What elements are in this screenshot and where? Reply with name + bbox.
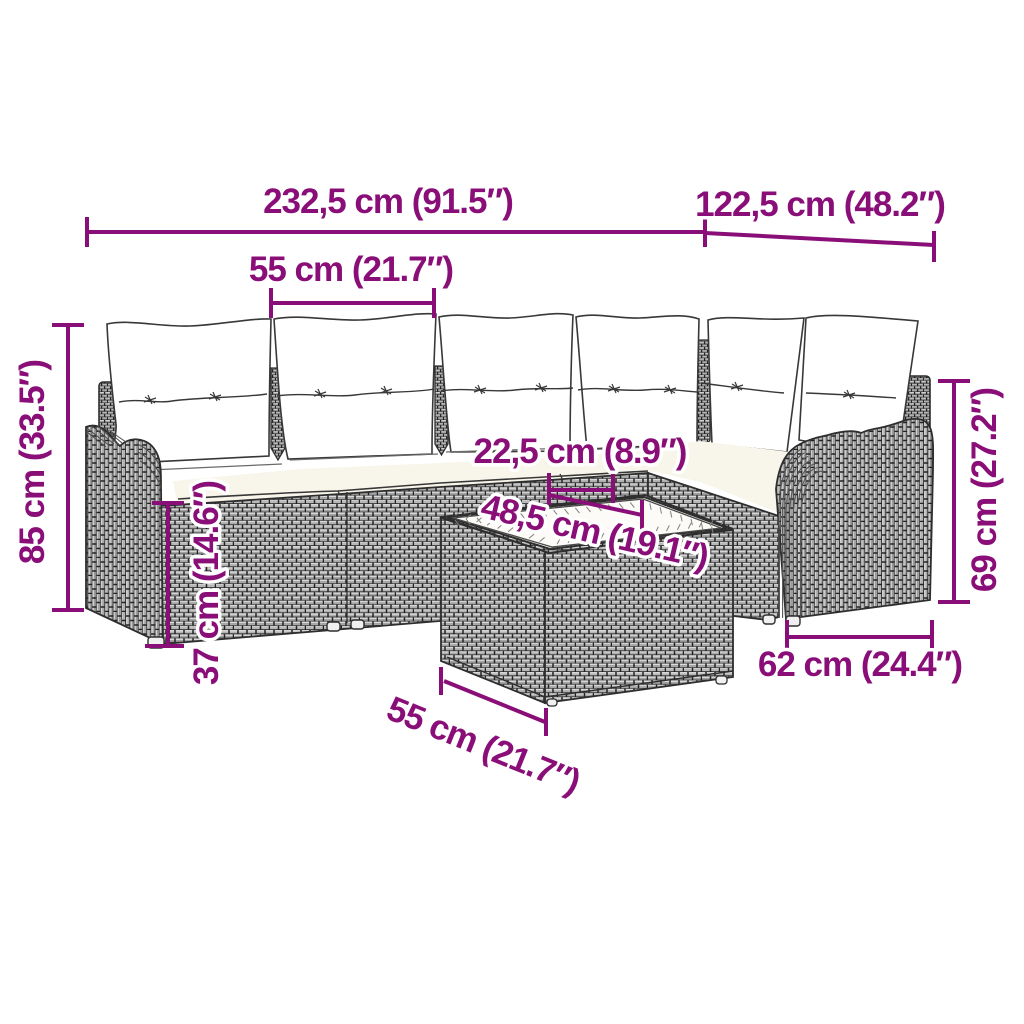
svg-text:62 cm (24.4″): 62 cm (24.4″) xyxy=(758,645,962,684)
svg-text:69 cm (27.2″): 69 cm (27.2″) xyxy=(965,388,1004,592)
svg-text:232,5 cm (91.5″): 232,5 cm (91.5″) xyxy=(263,182,513,221)
svg-text:37 cm (14.6″): 37 cm (14.6″) xyxy=(187,481,226,685)
svg-text:55 cm (21.7″): 55 cm (21.7″) xyxy=(249,250,453,289)
svg-text:85 cm (33.5″): 85 cm (33.5″) xyxy=(13,360,52,564)
svg-text:22,5 cm (8.9″): 22,5 cm (8.9″) xyxy=(474,432,687,471)
svg-text:122,5 cm (48.2″): 122,5 cm (48.2″) xyxy=(695,185,945,224)
